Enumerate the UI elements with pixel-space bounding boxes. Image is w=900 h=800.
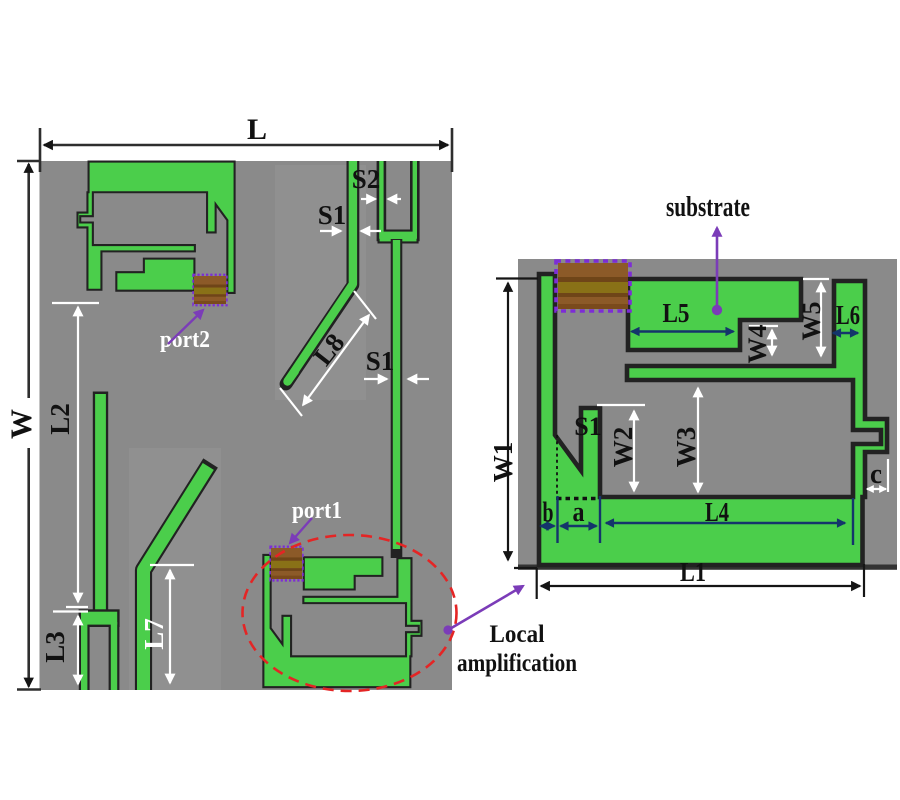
svg-text:port2: port2	[160, 327, 210, 353]
svg-text:L3: L3	[40, 631, 70, 663]
svg-text:substrate: substrate	[666, 192, 750, 223]
svg-text:L2: L2	[45, 403, 75, 435]
svg-text:W2: W2	[608, 427, 638, 468]
svg-text:port1: port1	[292, 498, 342, 524]
svg-text:S1: S1	[318, 200, 347, 230]
svg-text:W5: W5	[797, 302, 826, 341]
svg-text:L: L	[247, 113, 267, 146]
svg-text:S1: S1	[366, 346, 395, 376]
svg-text:a: a	[573, 496, 585, 528]
svg-text:W1: W1	[488, 442, 518, 483]
svg-text:W: W	[5, 409, 38, 439]
svg-text:c: c	[870, 458, 882, 490]
svg-text:amplification: amplification	[457, 648, 577, 677]
svg-text:L6: L6	[836, 300, 860, 330]
svg-text:S1: S1	[574, 412, 601, 441]
svg-text:W4: W4	[743, 325, 772, 364]
svg-text:W3: W3	[671, 427, 701, 468]
svg-text:L4: L4	[705, 497, 729, 527]
svg-text:b: b	[543, 497, 554, 529]
svg-text:S2: S2	[352, 164, 381, 194]
svg-text:L5: L5	[663, 298, 690, 328]
svg-text:L7: L7	[139, 618, 169, 650]
svg-text:L1: L1	[680, 557, 706, 587]
svg-text:Local: Local	[490, 619, 545, 648]
